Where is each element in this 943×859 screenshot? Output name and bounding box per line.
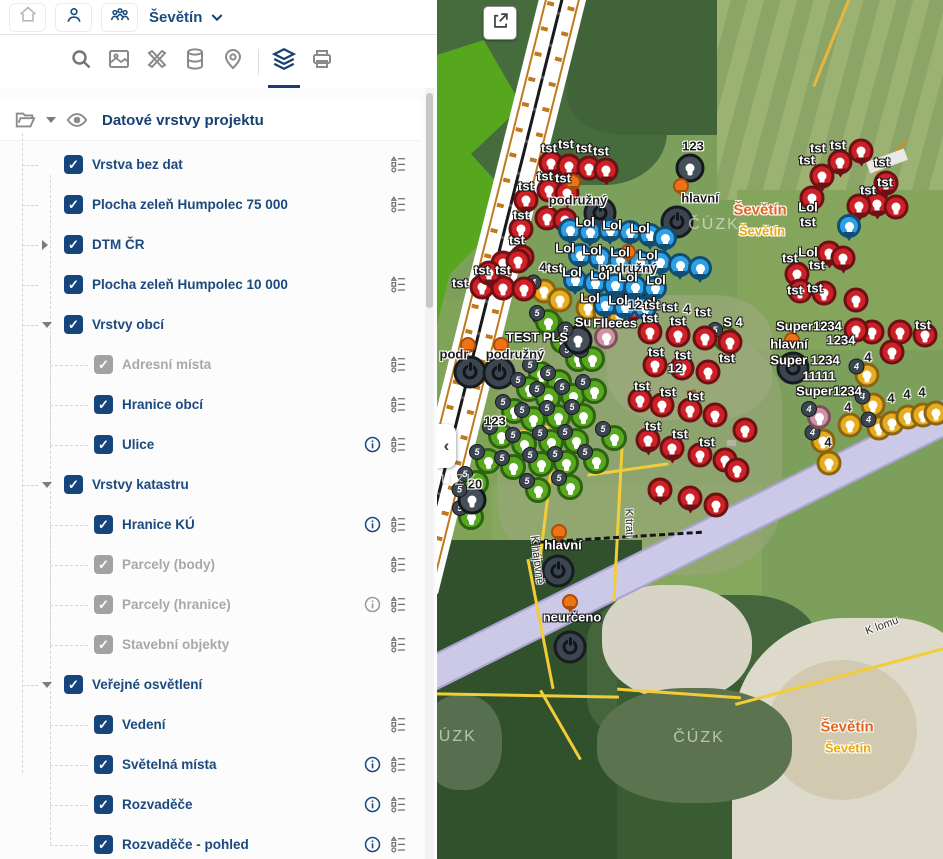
feature-label: tst: [518, 179, 534, 194]
marker-count-badge: 5: [510, 372, 526, 388]
marker-count-badge: 5: [519, 473, 535, 489]
feature-label: S 4: [723, 315, 743, 330]
lightbulb-icon: [468, 496, 477, 505]
lightbulb-icon: [873, 200, 882, 209]
layer-row-veden: ✓Vedení: [0, 705, 420, 745]
map-marker-switchboard[interactable]: [554, 631, 587, 664]
tree-guide-stub: [50, 645, 88, 646]
feature-label: tst: [660, 385, 676, 400]
quarry-area: [602, 585, 752, 700]
layer-legend-icon[interactable]: [391, 276, 406, 298]
layer-legend-icon[interactable]: [391, 836, 406, 858]
layer-label: Stavební objekty: [122, 637, 229, 652]
layer-info-icon[interactable]: [364, 796, 381, 818]
feature-label: tst: [787, 283, 803, 298]
layer-label: Hranice KÚ: [122, 517, 195, 532]
tree-guide-stub: [22, 165, 38, 166]
lightbulb-icon: [726, 338, 735, 347]
map-marker-pink[interactable]: 4: [807, 405, 831, 429]
tree-guide-stub: [22, 325, 38, 326]
power-dial-icon: [463, 365, 478, 380]
feature-label: podružný: [549, 193, 608, 208]
map-marker-orange[interactable]: [562, 594, 578, 610]
layer-legend-icon[interactable]: [391, 556, 406, 578]
map-toolbar: [0, 35, 437, 89]
map-marker-red[interactable]: [844, 288, 869, 313]
city-label: Ševětín: [733, 202, 786, 219]
toolbar-divider: [258, 49, 259, 75]
draw-tools-tool[interactable]: [138, 43, 176, 81]
feature-label: TEST PLS: [506, 330, 568, 345]
panel-header: Datové vrstvy projektu: [0, 100, 420, 141]
feature-label: Su: [575, 315, 592, 330]
feature-label: 4: [824, 435, 831, 450]
database-icon: [183, 47, 207, 76]
lightbulb-icon: [543, 214, 552, 223]
layer-row-ulice: ✓Ulice: [0, 425, 420, 465]
user-button[interactable]: [55, 3, 92, 32]
layer-row-parcely-hranice: ✓Parcely (hranice): [0, 585, 420, 625]
lightbulb-icon: [863, 371, 872, 380]
map-marker-blue-pin[interactable]: [653, 226, 677, 250]
layers-tool[interactable]: [265, 43, 303, 81]
print-icon: [310, 47, 334, 76]
layer-checkbox[interactable]: ✓: [64, 315, 83, 334]
basemap-icon: [107, 47, 131, 76]
feature-label: Lol: [590, 268, 610, 283]
home-button[interactable]: [9, 3, 46, 32]
layer-label: Parcely (body): [122, 557, 215, 572]
feature-label: Lol: [602, 218, 622, 233]
lightbulb-icon: [869, 401, 878, 410]
lightbulb-icon: [852, 296, 861, 305]
feature-label: tst: [662, 300, 678, 315]
basemap-tool[interactable]: [100, 43, 138, 81]
lightbulb-icon: [566, 226, 575, 235]
location-tool[interactable]: [214, 43, 252, 81]
layer-info-icon[interactable]: [364, 756, 381, 778]
marker-count-badge: 4: [849, 359, 865, 375]
lightbulb-icon: [579, 412, 588, 421]
map-marker-red-pin[interactable]: [678, 486, 703, 511]
layer-label: Vrstvy obcí: [92, 317, 164, 332]
lightbulb-icon: [932, 409, 941, 418]
feature-label: Lol: [575, 215, 595, 230]
building: [727, 440, 736, 447]
lightbulb-icon: [845, 222, 854, 231]
feature-label: tst: [695, 305, 711, 320]
lightbulb-icon: [520, 285, 529, 294]
city-label: Ševětín: [739, 224, 785, 239]
lightbulb-icon: [590, 387, 599, 396]
lightbulb-icon: [534, 486, 543, 495]
feature-label: Lol: [580, 291, 600, 306]
feature-label: tst: [513, 208, 529, 223]
layer-checkbox[interactable]: ✓: [64, 195, 83, 214]
map-marker-red[interactable]: [693, 326, 718, 351]
layer-label: Vedení: [122, 717, 166, 732]
layer-checkbox[interactable]: ✓: [64, 475, 83, 494]
map-marker-red[interactable]: [703, 403, 728, 428]
search-tool[interactable]: [62, 43, 100, 81]
tree-guide-stub: [50, 525, 88, 526]
collapse-arrow-icon[interactable]: [42, 322, 52, 328]
lightbulb-icon: [661, 234, 670, 243]
lightbulb-icon: [509, 463, 518, 472]
map-marker-red-pin[interactable]: [594, 158, 619, 183]
city-label: Ševětín: [820, 719, 873, 736]
layer-info-icon[interactable]: [364, 596, 381, 618]
layer-checkbox[interactable]: ✓: [64, 675, 83, 694]
map-marker-red[interactable]: [512, 277, 537, 302]
feature-label: 123: [484, 414, 506, 429]
feature-label: tst: [807, 281, 823, 296]
marker-count-badge: 5: [505, 427, 521, 443]
layer-label: Plocha zeleň Humpolec 10 000: [92, 277, 288, 292]
layer-label: Rozvaděče - pohled: [122, 837, 249, 852]
feature-label: tst: [547, 261, 563, 276]
layers-panel: Datové vrstvy projektu ✓Vrstva bez dat✓P…: [0, 88, 437, 859]
map-marker-red-pin[interactable]: [831, 246, 856, 271]
map-marker-red[interactable]: [725, 458, 750, 483]
layer-label: Světelná místa: [122, 757, 217, 772]
power-dial-icon: [551, 564, 566, 579]
lightbulb-icon: [793, 270, 802, 279]
layer-checkbox[interactable]: ✓: [94, 635, 113, 654]
map-marker-switchboard[interactable]: [542, 555, 575, 588]
lightbulb-icon: [537, 460, 546, 469]
map-marker-red[interactable]: [884, 195, 909, 220]
app-window: Ševětín: [0, 0, 943, 859]
marker-count-badge: 5: [595, 421, 611, 437]
lightbulb-icon: [839, 254, 848, 263]
map-marker-red[interactable]: [696, 360, 721, 385]
layer-checkbox[interactable]: ✓: [94, 835, 113, 854]
layer-row-parcely-body: ✓Parcely (body): [0, 545, 420, 585]
layer-checkbox[interactable]: ✓: [94, 795, 113, 814]
layer-tree: ✓Vrstva bez dat✓Plocha zeleň Humpolec 75…: [0, 145, 420, 859]
layer-legend-icon[interactable]: [391, 196, 406, 218]
lightbulb-icon: [556, 296, 565, 305]
marker-count-badge: 5: [575, 374, 591, 390]
tree-guide-stub: [50, 405, 88, 406]
sidebar-scrollbar[interactable]: [425, 88, 434, 859]
feature-label: tst: [474, 263, 490, 278]
layer-checkbox[interactable]: ✓: [64, 235, 83, 254]
layer-row-rozvad-e: ✓Rozvaděče: [0, 785, 420, 825]
tree-guide-stub: [50, 605, 88, 606]
map-marker-green[interactable]: 5: [583, 448, 609, 474]
layer-legend-icon[interactable]: [391, 356, 406, 378]
layer-info-icon[interactable]: [364, 516, 381, 538]
layer-row-vrstva-bez-dat: ✓Vrstva bez dat: [0, 145, 420, 185]
watermark-label: ČÚZK: [688, 216, 740, 234]
marker-count-badge: 5: [522, 447, 538, 463]
map-marker-blue-pin[interactable]: [688, 256, 712, 280]
home-icon: [18, 5, 38, 30]
lightbulb-icon: [701, 334, 710, 343]
lightbulb-icon: [522, 196, 531, 205]
lightbulb-icon: [818, 172, 827, 181]
lightbulb-icon: [676, 261, 685, 270]
feature-label: neurčeno: [543, 610, 602, 625]
layer-row-adresn-m-sta: ✓Adresní místa: [0, 345, 420, 385]
chevron-down-icon[interactable]: [209, 9, 225, 25]
marker-count-badge: 5: [564, 399, 580, 415]
feature-label: tst: [541, 141, 557, 156]
lightbulb-icon: [499, 284, 508, 293]
feature-label: Lol: [618, 270, 638, 285]
layer-row-dtm-r: ✓DTM ČR: [0, 225, 420, 265]
eye-icon[interactable]: [66, 109, 88, 131]
feature-label: hlavní: [544, 538, 582, 553]
collapse-arrow-icon[interactable]: [42, 682, 52, 688]
share-icon: [491, 11, 510, 35]
tree-guide-stub: [50, 365, 88, 366]
lightbulb-icon: [733, 466, 742, 475]
lightbulb-icon: [602, 166, 611, 175]
feature-label: 4: [918, 385, 925, 400]
map-marker-green[interactable]: 5: [570, 403, 596, 429]
layer-label: Rozvaděče: [122, 797, 193, 812]
layer-info-icon[interactable]: [364, 836, 381, 858]
map-marker-red-pin[interactable]: [648, 478, 673, 503]
project-title[interactable]: Ševětín: [149, 9, 202, 26]
feature-label: FIleees: [593, 316, 637, 331]
lightbulb-icon: [566, 483, 575, 492]
folder-open-icon[interactable]: [14, 109, 36, 131]
lightbulb-icon: [588, 355, 597, 364]
watermark-label: ČÚZK: [437, 472, 479, 490]
lightbulb-icon: [686, 164, 695, 173]
lightbulb-icon: [656, 486, 665, 495]
lightbulb-icon: [644, 436, 653, 445]
layer-row-vrstvy-obc: ✓Vrstvy obcí: [0, 305, 420, 345]
layer-label: DTM ČR: [92, 237, 145, 252]
lightbulb-icon: [514, 257, 523, 266]
layer-checkbox[interactable]: ✓: [94, 355, 113, 374]
feature-label: podružný: [486, 347, 545, 362]
tree-guide-stub: [22, 285, 38, 286]
lightbulb-icon: [574, 336, 583, 345]
map-marker-green[interactable]: 5: [581, 378, 607, 404]
layer-checkbox[interactable]: ✓: [94, 755, 113, 774]
map-marker-red[interactable]: [733, 418, 758, 443]
layer-legend-icon[interactable]: [391, 796, 406, 818]
scrollbar-thumb[interactable]: [426, 93, 433, 308]
power-dial-icon: [563, 640, 578, 655]
marker-count-badge: 5: [539, 400, 555, 416]
layer-label: Vrstva bez dat: [92, 157, 183, 172]
lightbulb-icon: [857, 147, 866, 156]
map-marker-green[interactable]: 5: [601, 425, 627, 451]
layer-row-rozvad-e-pohled: ✓Rozvaděče - pohled: [0, 825, 420, 859]
feature-label: Lol: [610, 245, 630, 260]
layer-label: Veřejné osvětlení: [92, 677, 202, 692]
feature-label: 4: [887, 391, 894, 406]
lightbulb-icon: [868, 328, 877, 337]
layer-checkbox[interactable]: ✓: [94, 395, 113, 414]
lightbulb-icon: [825, 459, 834, 468]
lightbulb-icon: [636, 396, 645, 405]
feature-label: tst: [719, 351, 735, 366]
layer-checkbox[interactable]: ✓: [64, 275, 83, 294]
lightbulb-icon: [686, 494, 695, 503]
marker-count-badge: 5: [532, 425, 548, 441]
chevron-down-icon[interactable]: [46, 117, 56, 123]
feature-label: tst: [877, 175, 893, 190]
layer-checkbox[interactable]: ✓: [94, 595, 113, 614]
layer-row-hranice-obc: ✓Hranice obcí: [0, 385, 420, 425]
layer-label: Adresní místa: [122, 357, 211, 372]
feature-label: 12: [628, 298, 642, 313]
tree-guide-stub: [22, 685, 38, 686]
lightbulb-icon: [888, 348, 897, 357]
layer-legend-icon[interactable]: [391, 716, 406, 738]
feature-label: tst: [670, 314, 686, 329]
marker-count-badge: 5: [494, 450, 510, 466]
feature-label: 4: [844, 400, 851, 415]
collapse-arrow-icon[interactable]: [42, 482, 52, 488]
marker-count-badge: 4: [801, 401, 817, 417]
user-icon: [64, 5, 84, 30]
lightbulb-icon: [896, 328, 905, 337]
layers-icon: [271, 46, 297, 77]
marker-count-badge: 5: [540, 365, 556, 381]
top-bar: Ševětín: [0, 0, 437, 35]
feature-label: 123: [682, 139, 704, 154]
feature-label: tst: [809, 258, 825, 273]
power-dial-icon: [492, 366, 507, 381]
layer-info-icon[interactable]: [364, 436, 381, 458]
tree-guide-stub: [22, 245, 38, 246]
map-marker-yellow[interactable]: [817, 451, 842, 476]
feature-label: tst: [645, 419, 661, 434]
layer-label: Vrstvy katastru: [92, 477, 189, 492]
lightbulb-icon: [610, 434, 619, 443]
layer-checkbox[interactable]: ✓: [94, 555, 113, 574]
lightbulb-icon: [547, 159, 556, 168]
collapse-panel-handle[interactable]: ‹: [437, 424, 456, 468]
feature-label: tst: [593, 144, 609, 159]
feature-label: Lol: [638, 248, 658, 263]
layer-checkbox[interactable]: ✓: [94, 715, 113, 734]
lightbulb-icon: [704, 368, 713, 377]
map-marker-red-pin[interactable]: [849, 139, 874, 164]
map-marker-green[interactable]: 5: [557, 474, 583, 500]
layer-row-stavebn-objekty: ✓Stavební objekty: [0, 625, 420, 665]
city-label: Ševětín: [825, 741, 871, 756]
map-marker-yellow[interactable]: 4: [811, 429, 836, 454]
location-pin-icon: [221, 47, 245, 76]
layer-row-ve-ejn-osv-tlen: ✓Veřejné osvětlení: [0, 665, 420, 705]
tree-guide-stub: [50, 445, 88, 446]
map-marker-red[interactable]: [704, 493, 729, 518]
feature-label: tst: [648, 345, 664, 360]
feature-label: Lol: [798, 245, 818, 260]
database-tool[interactable]: [176, 43, 214, 81]
feature-label: podr: [440, 347, 469, 362]
marker-count-badge: 4: [861, 412, 877, 428]
feature-label: Super 1234: [770, 353, 839, 368]
marker-count-badge: 5: [554, 379, 570, 395]
lightbulb-icon: [529, 415, 538, 424]
marker-count-badge: 5: [551, 470, 567, 486]
layer-label: Parcely (hranice): [122, 597, 231, 612]
layer-row-sv-teln-m-sta: ✓Světelná místa: [0, 745, 420, 785]
feature-label: tst: [782, 251, 798, 266]
layer-checkbox[interactable]: ✓: [94, 515, 113, 534]
lightbulb-icon: [712, 501, 721, 510]
map-marker-blue-pin[interactable]: [837, 214, 861, 238]
feature-label: tst: [688, 389, 704, 404]
layer-legend-icon[interactable]: [391, 436, 406, 458]
layer-row-hranice-k: ✓Hranice KÚ: [0, 505, 420, 545]
layer-row-plocha-zele-humpolec-10-000: ✓Plocha zeleň Humpolec 10 000: [0, 265, 420, 305]
layer-legend-icon[interactable]: [391, 636, 406, 658]
lightbulb-icon: [651, 361, 660, 370]
map-marker-yellow[interactable]: [924, 401, 943, 426]
feature-label: Lol: [630, 221, 650, 236]
marker-count-badge: 5: [529, 381, 545, 397]
lightbulb-icon: [658, 401, 667, 410]
feature-label: Lol: [555, 241, 575, 256]
feature-label: Lol: [608, 293, 628, 308]
panel-title: Datové vrstvy projektu: [102, 112, 264, 129]
feature-label: tst: [555, 171, 571, 186]
lightbulb-icon: [696, 264, 705, 273]
marker-count-badge: 5: [469, 444, 485, 460]
team-icon: [109, 5, 131, 30]
map-marker-green[interactable]: 5: [525, 477, 551, 503]
map-marker-yellow[interactable]: [838, 413, 863, 438]
map-marker-red[interactable]: [880, 340, 905, 365]
share-button[interactable]: [483, 6, 517, 40]
lightbulb-icon: [855, 202, 864, 211]
layer-legend-icon[interactable]: [391, 596, 406, 618]
marker-count-badge: 5: [577, 444, 593, 460]
team-button[interactable]: [101, 3, 138, 32]
print-tool[interactable]: [303, 43, 341, 81]
layer-legend-icon[interactable]: [391, 756, 406, 778]
map-canvas[interactable]: 55555555555555555555555555555544444455 t…: [437, 0, 943, 859]
feature-label: tst: [799, 153, 815, 168]
lightbulb-icon: [815, 413, 824, 422]
layer-label: Ulice: [122, 437, 154, 452]
lightbulb-icon: [668, 444, 677, 453]
layer-checkbox[interactable]: ✓: [94, 435, 113, 454]
lightbulb-icon: [562, 459, 571, 468]
marker-count-badge: 5: [557, 424, 573, 440]
feature-label: 4: [864, 350, 871, 365]
layer-label: Hranice obcí: [122, 397, 203, 412]
tree-guide-stub: [50, 805, 88, 806]
expand-arrow-icon[interactable]: [42, 240, 48, 250]
lightbulb-icon: [892, 203, 901, 212]
layer-legend-icon[interactable]: [391, 396, 406, 418]
layer-checkbox[interactable]: ✓: [64, 155, 83, 174]
search-icon: [69, 47, 93, 76]
tree-guide-stub: [50, 845, 88, 846]
feature-label: tst: [874, 155, 890, 170]
feature-label: tst: [452, 276, 468, 291]
layer-legend-icon[interactable]: [391, 516, 406, 538]
feature-label: Lol: [562, 265, 582, 280]
marker-count-badge: 5: [495, 394, 511, 410]
lightbulb-icon: [836, 158, 845, 167]
layer-legend-icon[interactable]: [391, 156, 406, 178]
feature-label: tst: [634, 379, 650, 394]
